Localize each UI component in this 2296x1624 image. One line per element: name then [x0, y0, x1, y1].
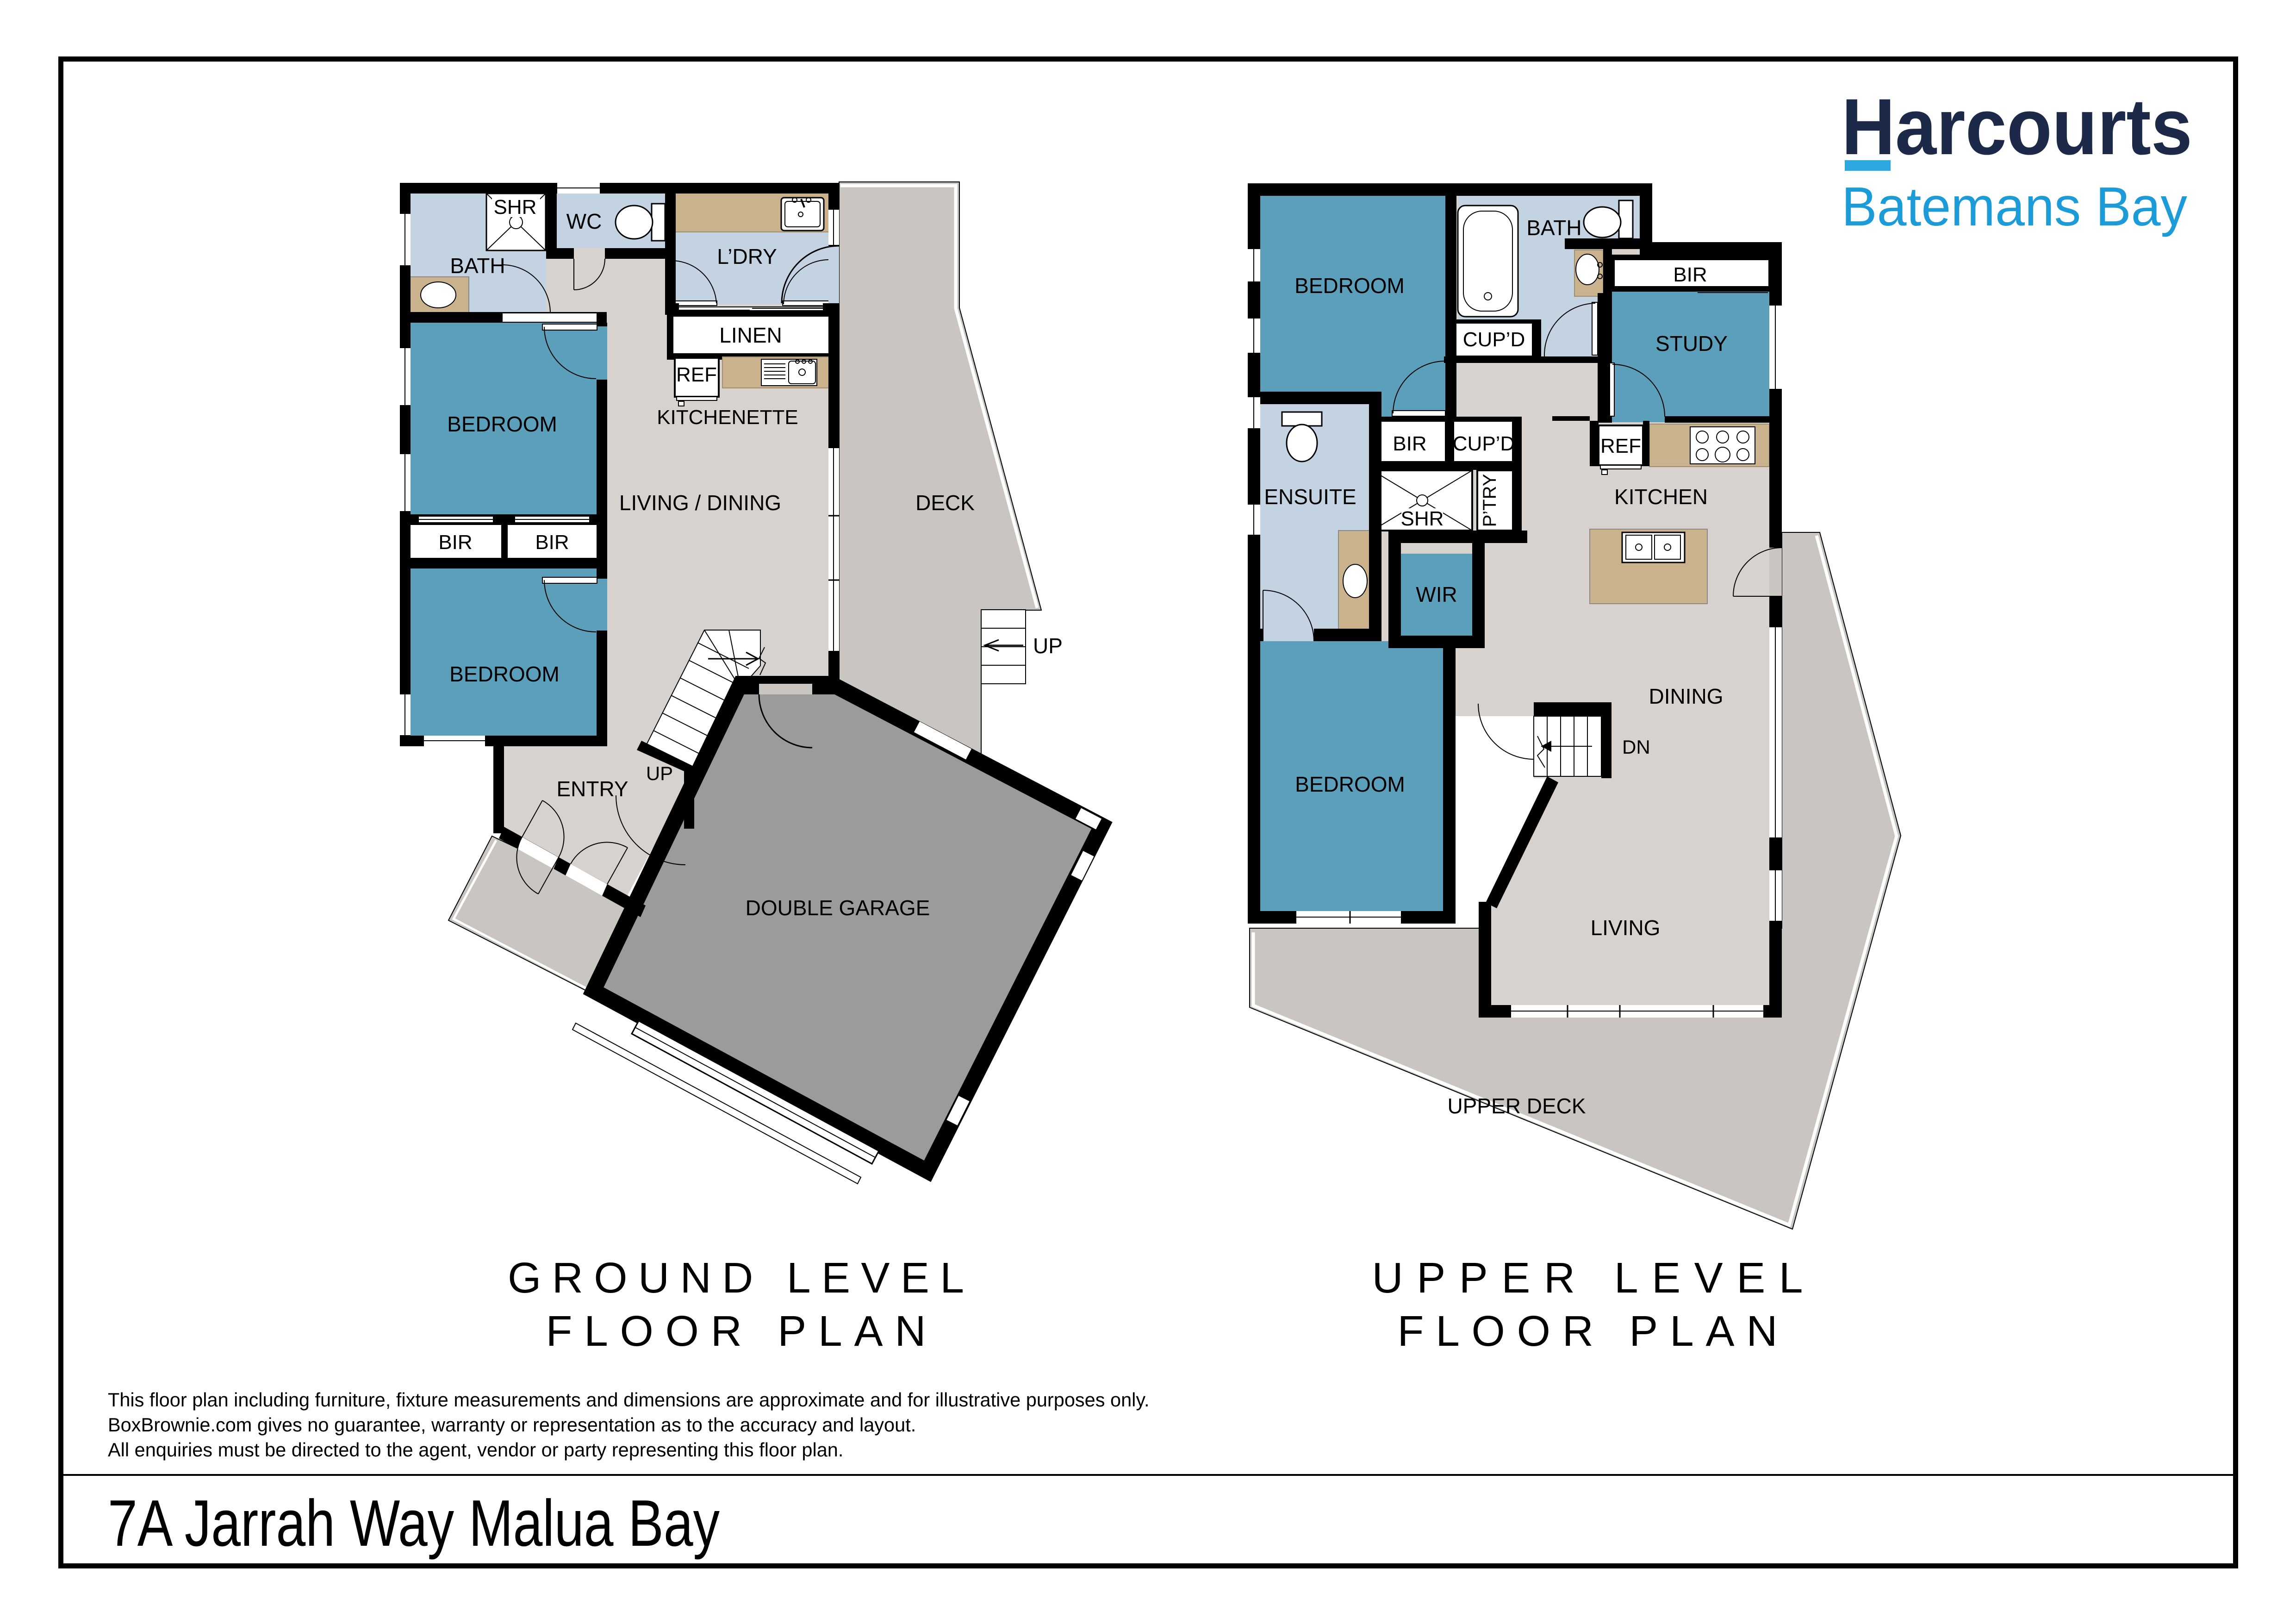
svg-text:BEDROOM: BEDROOM: [447, 412, 557, 436]
svg-text:BIR: BIR: [438, 531, 472, 554]
svg-text:DOUBLE GARAGE: DOUBLE GARAGE: [746, 896, 930, 920]
svg-text:CUP’D: CUP’D: [1453, 432, 1515, 455]
svg-text:ENTRY: ENTRY: [556, 777, 628, 801]
svg-text:WIR: WIR: [1416, 582, 1457, 606]
svg-text:CUP’D: CUP’D: [1463, 328, 1525, 351]
svg-text:BATH: BATH: [450, 254, 505, 278]
svg-text:BIR: BIR: [1673, 263, 1707, 286]
svg-text:DN: DN: [1622, 736, 1650, 758]
svg-text:LIVING / DINING: LIVING / DINING: [619, 491, 781, 515]
svg-text:All enquiries must be directed: All enquiries must be directed to the ag…: [108, 1439, 843, 1461]
svg-text:KITCHENETTE: KITCHENETTE: [657, 406, 798, 429]
svg-text:BIR: BIR: [1393, 432, 1426, 455]
svg-text:Harcourts: Harcourts: [1842, 82, 2192, 171]
svg-text:UP: UP: [646, 762, 673, 784]
svg-text:REF: REF: [1600, 435, 1641, 457]
svg-text:BEDROOM: BEDROOM: [1294, 274, 1405, 298]
svg-text:SHR: SHR: [494, 196, 537, 219]
svg-text:ENSUITE: ENSUITE: [1264, 485, 1356, 509]
svg-text:LINEN: LINEN: [719, 323, 782, 347]
svg-text:DECK: DECK: [915, 491, 975, 515]
svg-text:This floor plan including furn: This floor plan including furniture, fix…: [108, 1389, 1150, 1411]
svg-text:GROUND LEVEL: GROUND LEVEL: [508, 1254, 973, 1302]
svg-text:BoxBrownie.com gives no guaran: BoxBrownie.com gives no guarantee, warra…: [108, 1414, 916, 1436]
svg-text:BEDROOM: BEDROOM: [1295, 772, 1405, 796]
svg-text:UP: UP: [1033, 634, 1063, 658]
svg-text:LIVING: LIVING: [1591, 916, 1661, 940]
svg-text:WC: WC: [566, 209, 602, 233]
svg-text:Batemans Bay: Batemans Bay: [1842, 176, 2187, 237]
svg-text:FLOOR PLAN: FLOOR PLAN: [546, 1307, 935, 1355]
svg-text:STUDY: STUDY: [1655, 331, 1728, 356]
svg-text:7A Jarrah Way Malua Bay: 7A Jarrah Way Malua Bay: [108, 1487, 720, 1560]
svg-text:DINING: DINING: [1649, 684, 1724, 708]
svg-text:P’TRY: P’TRY: [1480, 474, 1500, 527]
svg-text:BEDROOM: BEDROOM: [449, 662, 560, 686]
svg-text:FLOOR PLAN: FLOOR PLAN: [1398, 1307, 1787, 1355]
svg-text:SHR: SHR: [1401, 507, 1444, 530]
svg-text:L’DRY: L’DRY: [717, 244, 777, 269]
svg-text:BIR: BIR: [535, 531, 569, 554]
svg-text:BATH: BATH: [1526, 216, 1581, 240]
svg-text:UPPER DECK: UPPER DECK: [1447, 1094, 1586, 1118]
svg-text:UPPER LEVEL: UPPER LEVEL: [1372, 1254, 1812, 1302]
svg-text:REF: REF: [676, 363, 717, 386]
svg-text:KITCHEN: KITCHEN: [1614, 485, 1708, 509]
